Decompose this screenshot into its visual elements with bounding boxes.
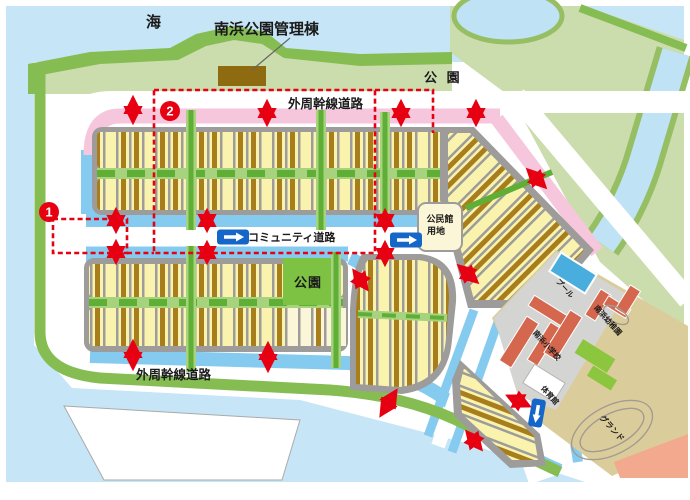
badge-2-number: 2 — [166, 104, 173, 119]
planned-town-map: 1 2 海 南浜公園管理棟 公 園 外周幹線道路 コミュニティ道路 公民館 用地… — [0, 0, 690, 500]
community-hall-label-1: 公民館 — [426, 213, 453, 224]
sea-label: 海 — [146, 13, 161, 31]
management-building-label: 南浜公園管理棟 — [214, 20, 320, 38]
badge-1: 1 — [39, 202, 59, 222]
direction-sign — [217, 230, 249, 245]
outer-road-top-label: 外周幹線道路 — [287, 96, 364, 111]
park-mid-label: 公園 — [294, 275, 322, 290]
park-management-building — [218, 66, 266, 86]
rounded-lots — [356, 260, 449, 387]
park-top-label: 公 園 — [424, 70, 463, 85]
upper-lots-row2 — [97, 179, 457, 210]
badge-1-number: 1 — [45, 205, 52, 220]
map-canvas: 1 2 海 南浜公園管理棟 公 園 外周幹線道路 コミュニティ道路 公民館 用地… — [0, 0, 690, 500]
outer-road-bottom-label: 外周幹線道路 — [135, 367, 212, 382]
community-road-label: コミュニティ道路 — [248, 230, 336, 244]
badge-2: 2 — [160, 101, 180, 121]
upper-lots-row1 — [97, 132, 457, 168]
direction-sign — [390, 233, 422, 248]
community-hall-label-2: 用地 — [426, 225, 445, 236]
pond-top-right — [454, 0, 562, 42]
